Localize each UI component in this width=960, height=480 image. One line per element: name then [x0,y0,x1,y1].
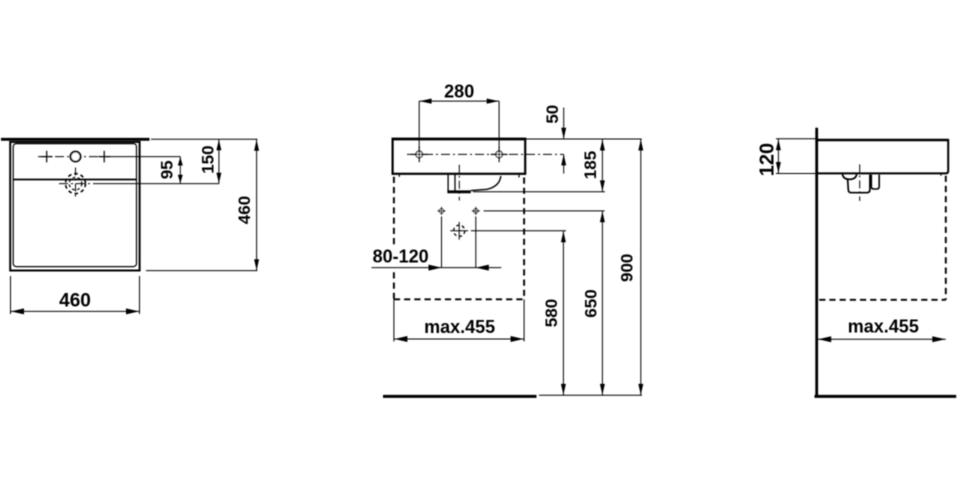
svg-text:650: 650 [581,289,600,317]
svg-text:95: 95 [157,160,176,179]
svg-text:280: 280 [444,81,474,101]
svg-text:80-120: 80-120 [373,246,429,266]
svg-text:max.455: max.455 [424,317,495,337]
svg-text:900: 900 [617,254,636,282]
svg-text:460: 460 [59,291,91,312]
svg-text:150: 150 [198,145,217,173]
svg-text:120: 120 [757,143,779,176]
svg-text:460: 460 [235,196,254,224]
svg-text:580: 580 [542,299,561,327]
svg-text:max.455: max.455 [848,317,919,337]
svg-text:185: 185 [581,151,600,179]
svg-text:50: 50 [543,105,562,124]
